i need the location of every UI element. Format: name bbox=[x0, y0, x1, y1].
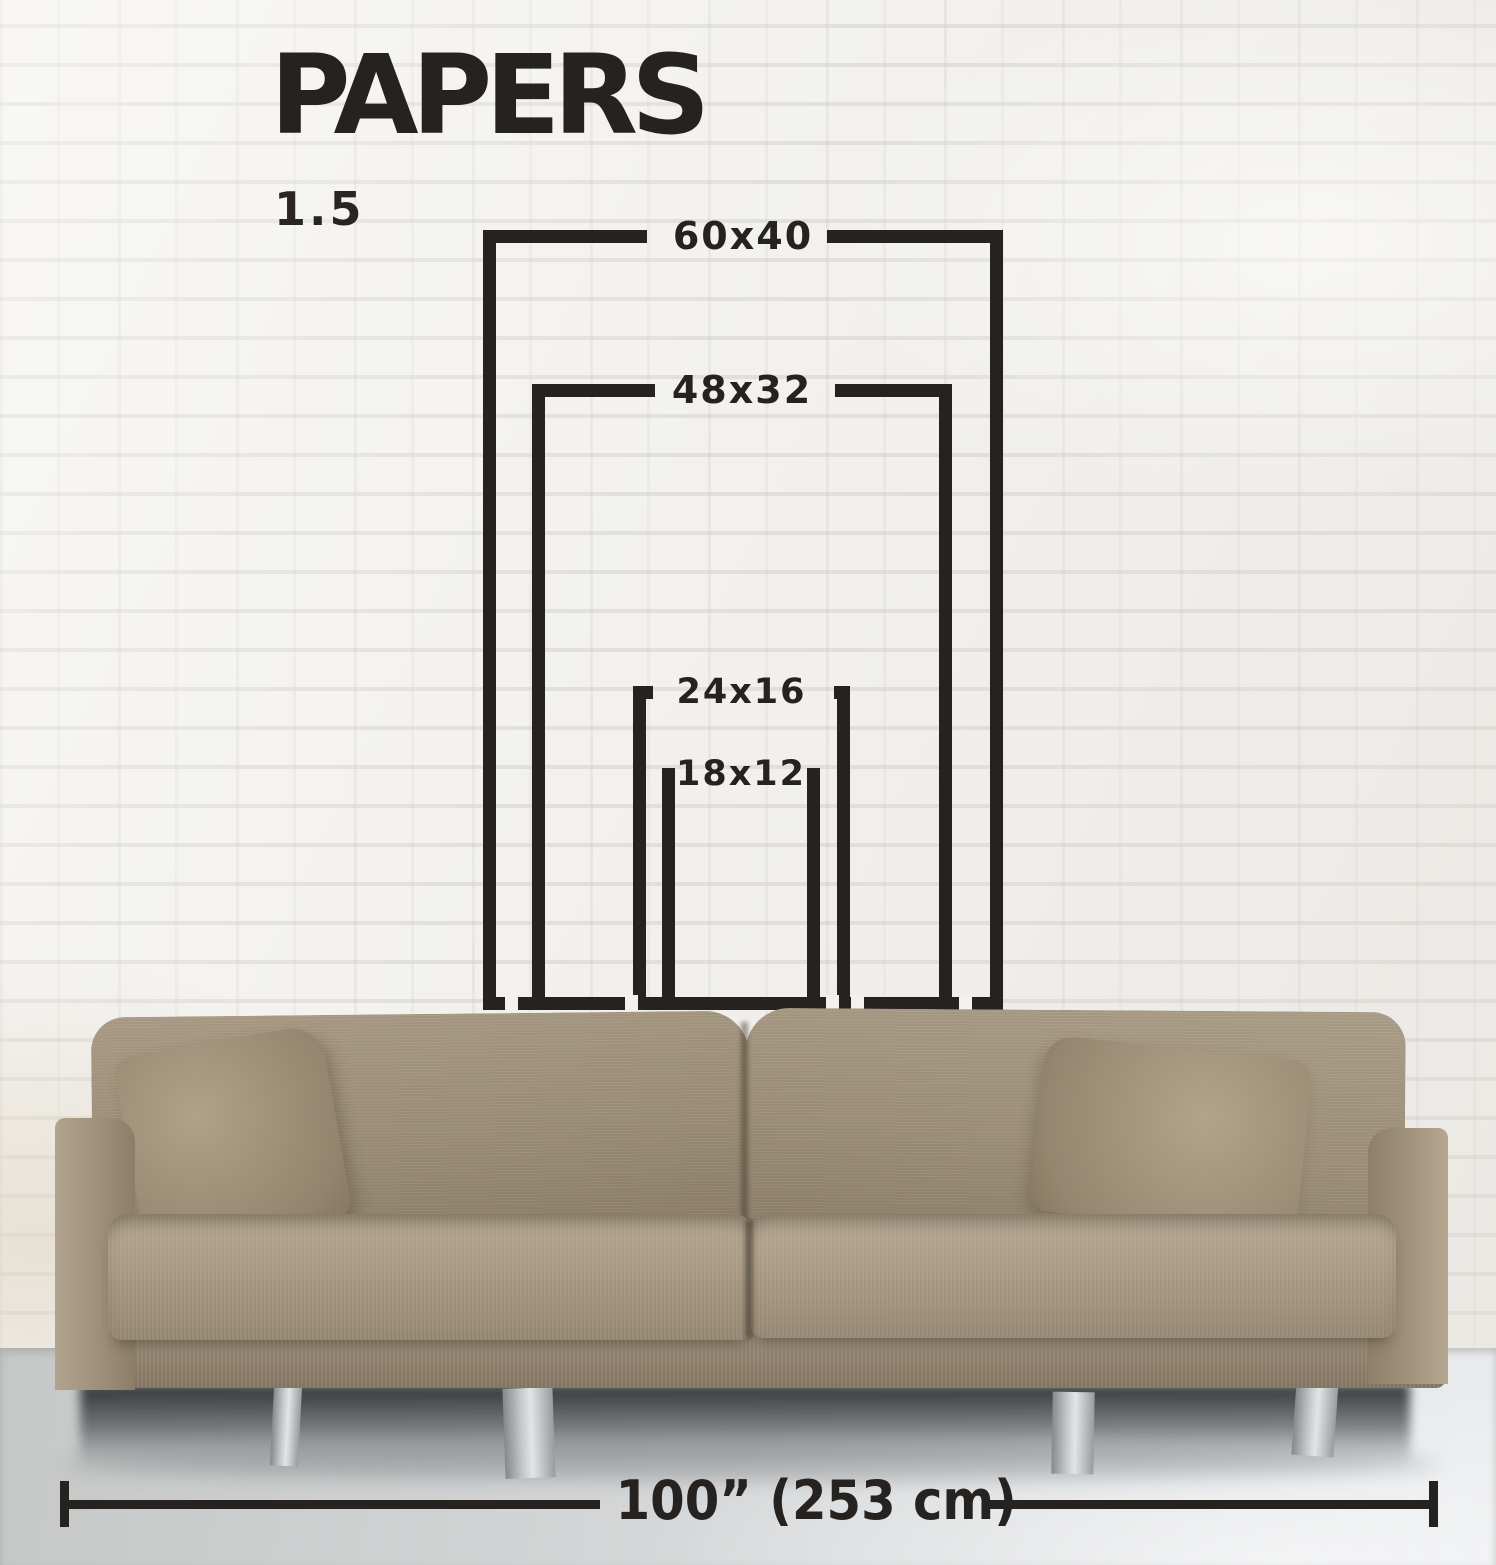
outline-edge bbox=[835, 384, 952, 397]
sofa-width-label: 100” (253 cm) bbox=[616, 1474, 975, 1528]
size-label: 60x40 bbox=[673, 218, 813, 255]
ratio-label: 1.5 bbox=[274, 186, 365, 232]
sofa-seat-cushion-left bbox=[108, 1214, 754, 1340]
outline-edge bbox=[990, 230, 1003, 1010]
sofa-seat-seam bbox=[745, 1220, 753, 1338]
outline-edge bbox=[807, 768, 820, 1010]
width-measure-line bbox=[60, 1500, 600, 1509]
outline-edge bbox=[483, 230, 496, 1010]
outline-edge bbox=[662, 768, 671, 781]
outline-edge bbox=[532, 384, 655, 397]
print-size-guide: PAPERS 1.5 60x40 48x32 24x16 18x12 bbox=[0, 0, 1496, 1565]
outline-edge bbox=[834, 686, 850, 699]
size-label: 48x32 bbox=[672, 372, 812, 409]
sofa-seat-cushion-right bbox=[750, 1214, 1396, 1338]
size-outline-18x12: 18x12 bbox=[662, 768, 820, 1010]
sofa-leg bbox=[270, 1385, 302, 1466]
outline-edge bbox=[811, 768, 820, 781]
sofa-leg bbox=[1051, 1392, 1094, 1475]
page-title: PAPERS bbox=[270, 40, 703, 150]
outline-edge bbox=[633, 686, 646, 1010]
width-measure-endcap-left bbox=[60, 1481, 69, 1527]
sofa-leg bbox=[1291, 1379, 1338, 1458]
sofa-leg bbox=[502, 1387, 555, 1479]
outline-edge bbox=[633, 686, 653, 699]
size-label: 24x16 bbox=[677, 675, 807, 710]
sofa-back-seam bbox=[741, 1022, 748, 1232]
throw-pillow-right bbox=[1029, 1034, 1314, 1237]
size-label: 18x12 bbox=[676, 757, 806, 792]
width-measure-line bbox=[990, 1500, 1438, 1509]
outline-edge bbox=[483, 230, 647, 243]
outline-edge bbox=[532, 384, 545, 1010]
sofa bbox=[55, 1008, 1448, 1488]
outline-edge bbox=[662, 768, 675, 1010]
outline-edge bbox=[939, 384, 952, 1010]
width-measure-endcap-right bbox=[1429, 1481, 1438, 1527]
outline-edge bbox=[837, 686, 850, 1010]
outline-edge bbox=[827, 230, 1003, 243]
